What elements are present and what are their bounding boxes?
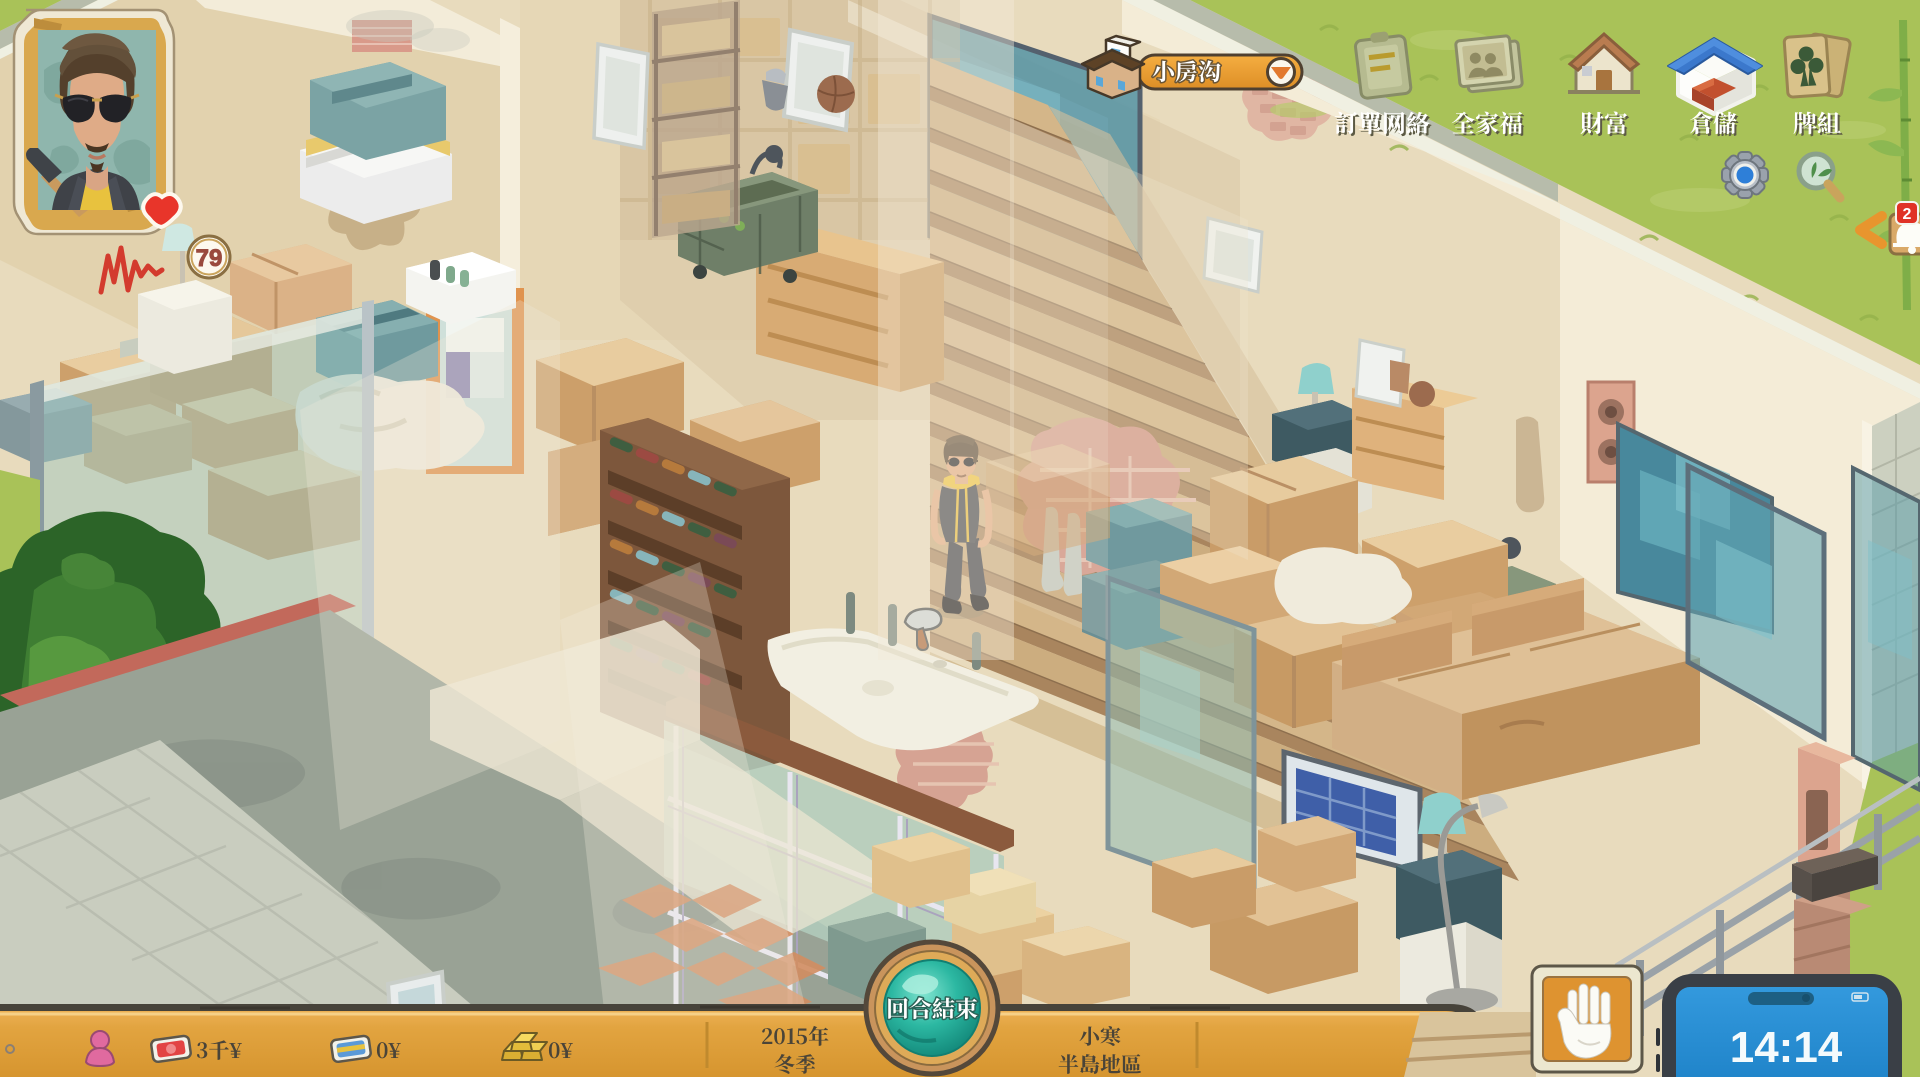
svg-text:2: 2 xyxy=(1903,206,1912,223)
svg-text:14:14: 14:14 xyxy=(1730,1023,1843,1072)
svg-text:79: 79 xyxy=(196,245,223,272)
